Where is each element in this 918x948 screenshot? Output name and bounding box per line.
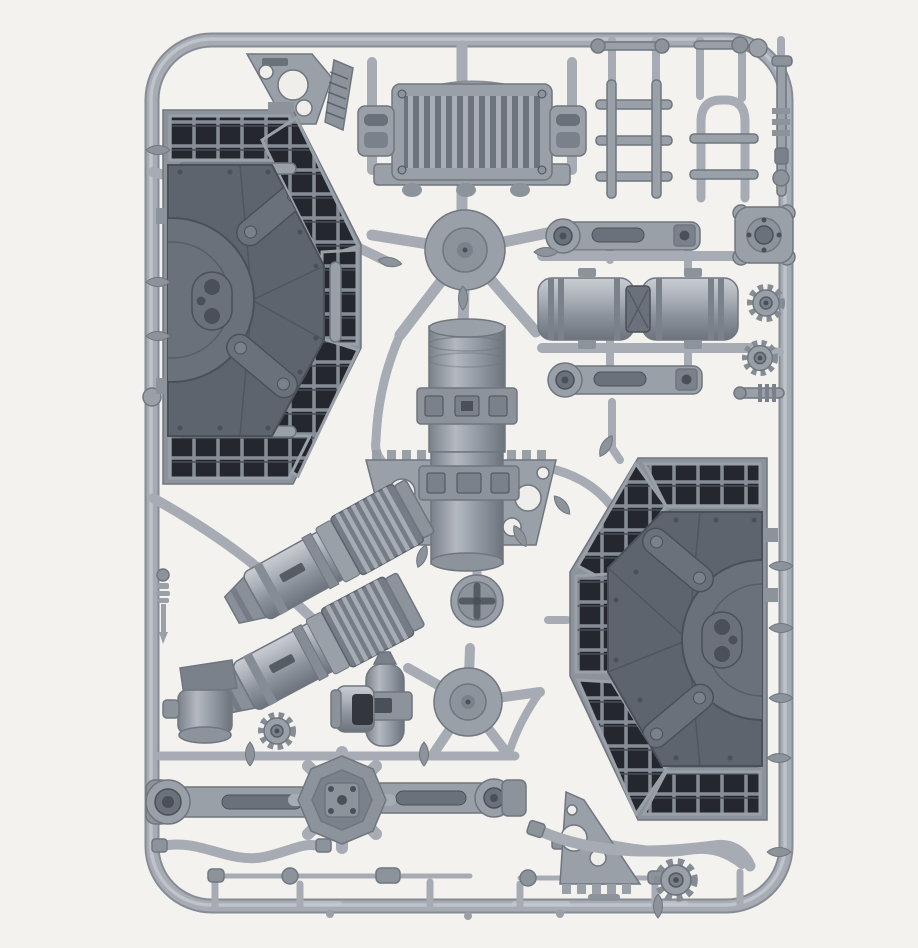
strap-clamp (419, 466, 519, 500)
link-arm-top (546, 219, 700, 253)
radiator-clamp-left (358, 106, 394, 156)
axle-end-left (146, 780, 190, 824)
sprue-illustration (0, 0, 918, 948)
cross-puck (451, 575, 503, 627)
radiator-clamp-right (550, 106, 586, 156)
injection-hub-upper (425, 210, 505, 290)
link-arm-bottom (548, 363, 702, 397)
axle-end-right (475, 779, 526, 817)
injection-hub-lower (434, 668, 502, 736)
strap-clamp (417, 388, 517, 424)
differential-housing (294, 752, 390, 848)
product-photo (0, 0, 918, 948)
radiator-assembly (358, 84, 586, 197)
hub-plate (733, 205, 795, 265)
sleeve-cylinder (331, 686, 374, 732)
